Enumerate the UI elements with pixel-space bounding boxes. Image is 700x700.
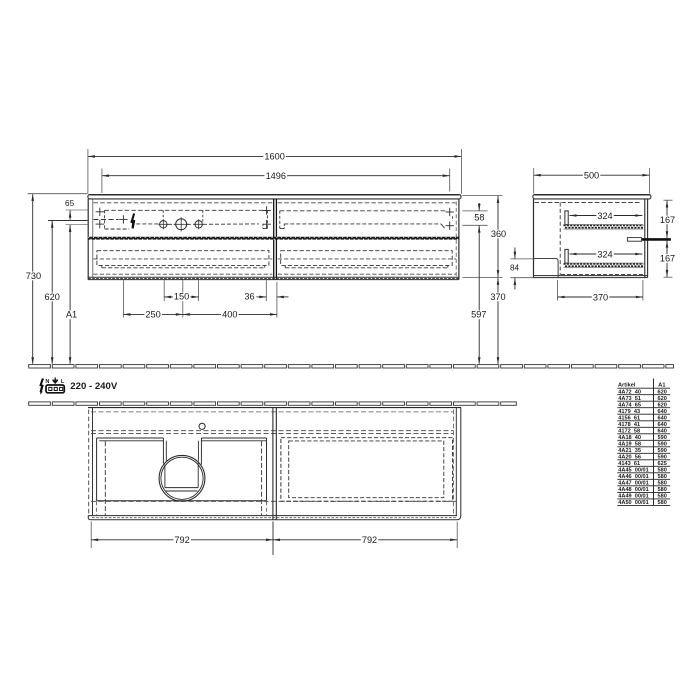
- svg-text:580: 580: [658, 487, 667, 493]
- svg-text:4A18 40: 4A18 40: [618, 435, 641, 441]
- svg-text:A1: A1: [658, 382, 665, 388]
- svg-text:640: 640: [658, 415, 667, 421]
- svg-text:640: 640: [658, 428, 667, 434]
- svg-text:792: 792: [174, 535, 189, 545]
- svg-text:4A46 00/01: 4A46 00/01: [618, 474, 648, 480]
- svg-text:4178 41: 4178 41: [618, 422, 640, 428]
- svg-text:4143 61: 4143 61: [618, 461, 640, 467]
- svg-text:640: 640: [658, 422, 667, 428]
- svg-text:A1: A1: [66, 310, 77, 320]
- svg-text:597: 597: [471, 310, 486, 320]
- svg-text:640: 640: [658, 409, 667, 415]
- svg-text:620: 620: [658, 402, 667, 408]
- svg-text:580: 580: [658, 480, 667, 486]
- svg-text:4172 58: 4172 58: [618, 428, 640, 434]
- svg-text:4A50 00/01: 4A50 00/01: [618, 500, 648, 506]
- svg-text:150: 150: [174, 292, 189, 302]
- svg-text:730: 730: [26, 271, 41, 281]
- svg-text:590: 590: [658, 454, 667, 460]
- svg-text:625: 625: [658, 461, 667, 467]
- svg-text:500: 500: [584, 171, 599, 181]
- svg-text:167: 167: [660, 253, 675, 263]
- svg-text:4A20 56: 4A20 56: [618, 454, 641, 460]
- svg-text:4A47 00/01: 4A47 00/01: [618, 480, 648, 486]
- svg-text:36: 36: [244, 292, 254, 302]
- svg-text:620: 620: [45, 292, 60, 302]
- svg-text:4A73 51: 4A73 51: [618, 396, 641, 402]
- svg-text:84: 84: [510, 263, 520, 272]
- svg-text:4156 61: 4156 61: [618, 415, 640, 421]
- svg-text:4A21 35: 4A21 35: [618, 448, 641, 454]
- svg-text:4A74 65: 4A74 65: [618, 402, 641, 408]
- svg-text:1496: 1496: [266, 171, 286, 181]
- svg-text:4179 43: 4179 43: [618, 409, 640, 415]
- svg-text:Artikel: Artikel: [618, 382, 636, 388]
- svg-text:580: 580: [658, 474, 667, 480]
- svg-text:580: 580: [658, 500, 667, 506]
- svg-text:370: 370: [490, 292, 505, 302]
- svg-text:370: 370: [593, 292, 608, 302]
- svg-text:324: 324: [597, 211, 612, 221]
- svg-text:250: 250: [145, 310, 160, 320]
- svg-text:65: 65: [65, 199, 75, 208]
- svg-text:590: 590: [658, 435, 667, 441]
- svg-text:590: 590: [658, 441, 667, 447]
- svg-text:167: 167: [660, 215, 675, 225]
- svg-text:1600: 1600: [264, 152, 284, 162]
- svg-text:580: 580: [658, 467, 667, 473]
- svg-text:580: 580: [658, 494, 667, 500]
- svg-text:400: 400: [222, 310, 237, 320]
- svg-text:4A49 00/01: 4A49 00/01: [618, 494, 648, 500]
- svg-text:L: L: [61, 379, 65, 385]
- svg-text:324: 324: [597, 249, 612, 259]
- svg-text:620: 620: [658, 389, 667, 395]
- svg-text:620: 620: [658, 396, 667, 402]
- svg-text:792: 792: [362, 535, 377, 545]
- svg-text:360: 360: [491, 229, 506, 239]
- svg-text:220 - 240V: 220 - 240V: [70, 381, 118, 392]
- svg-text:N: N: [45, 379, 49, 385]
- svg-text:4A72 40: 4A72 40: [618, 389, 641, 395]
- svg-text:4A19 58: 4A19 58: [618, 441, 641, 447]
- svg-text:590: 590: [658, 448, 667, 454]
- svg-text:4A48 00/01: 4A48 00/01: [618, 487, 648, 493]
- svg-text:58: 58: [474, 213, 484, 223]
- svg-text:4A45 00/01: 4A45 00/01: [618, 467, 648, 473]
